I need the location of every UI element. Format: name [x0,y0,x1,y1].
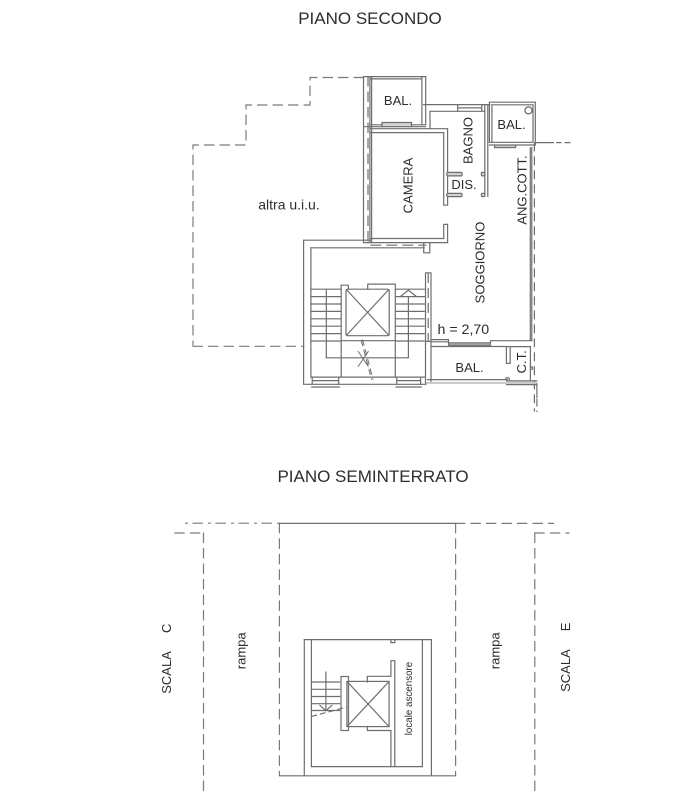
svg-text:SCALA C: SCALA C [159,624,174,694]
svg-text:rampa: rampa [487,632,502,670]
svg-text:BAL.: BAL. [384,93,412,108]
svg-text:SCALA E: SCALA E [558,622,573,692]
svg-text:C.T.: C.T. [514,350,529,373]
svg-text:locale ascensore: locale ascensore [404,661,415,735]
svg-text:PIANO SECONDO: PIANO SECONDO [298,9,442,28]
svg-text:altra u.i.u.: altra u.i.u. [258,197,319,213]
svg-text:rampa: rampa [234,632,249,670]
svg-text:h = 2,70: h = 2,70 [438,322,490,338]
svg-text:ANG.COTT.: ANG.COTT. [515,155,530,224]
svg-text:BAL.: BAL. [455,360,483,375]
svg-text:DIS.: DIS. [451,177,476,192]
svg-text:CAMERA: CAMERA [401,157,416,213]
svg-text:BAL.: BAL. [497,117,525,132]
svg-text:PIANO SEMINTERRATO: PIANO SEMINTERRATO [277,467,468,486]
svg-text:BAGNO: BAGNO [461,117,476,164]
svg-text:SOGGIORNO: SOGGIORNO [473,222,488,304]
